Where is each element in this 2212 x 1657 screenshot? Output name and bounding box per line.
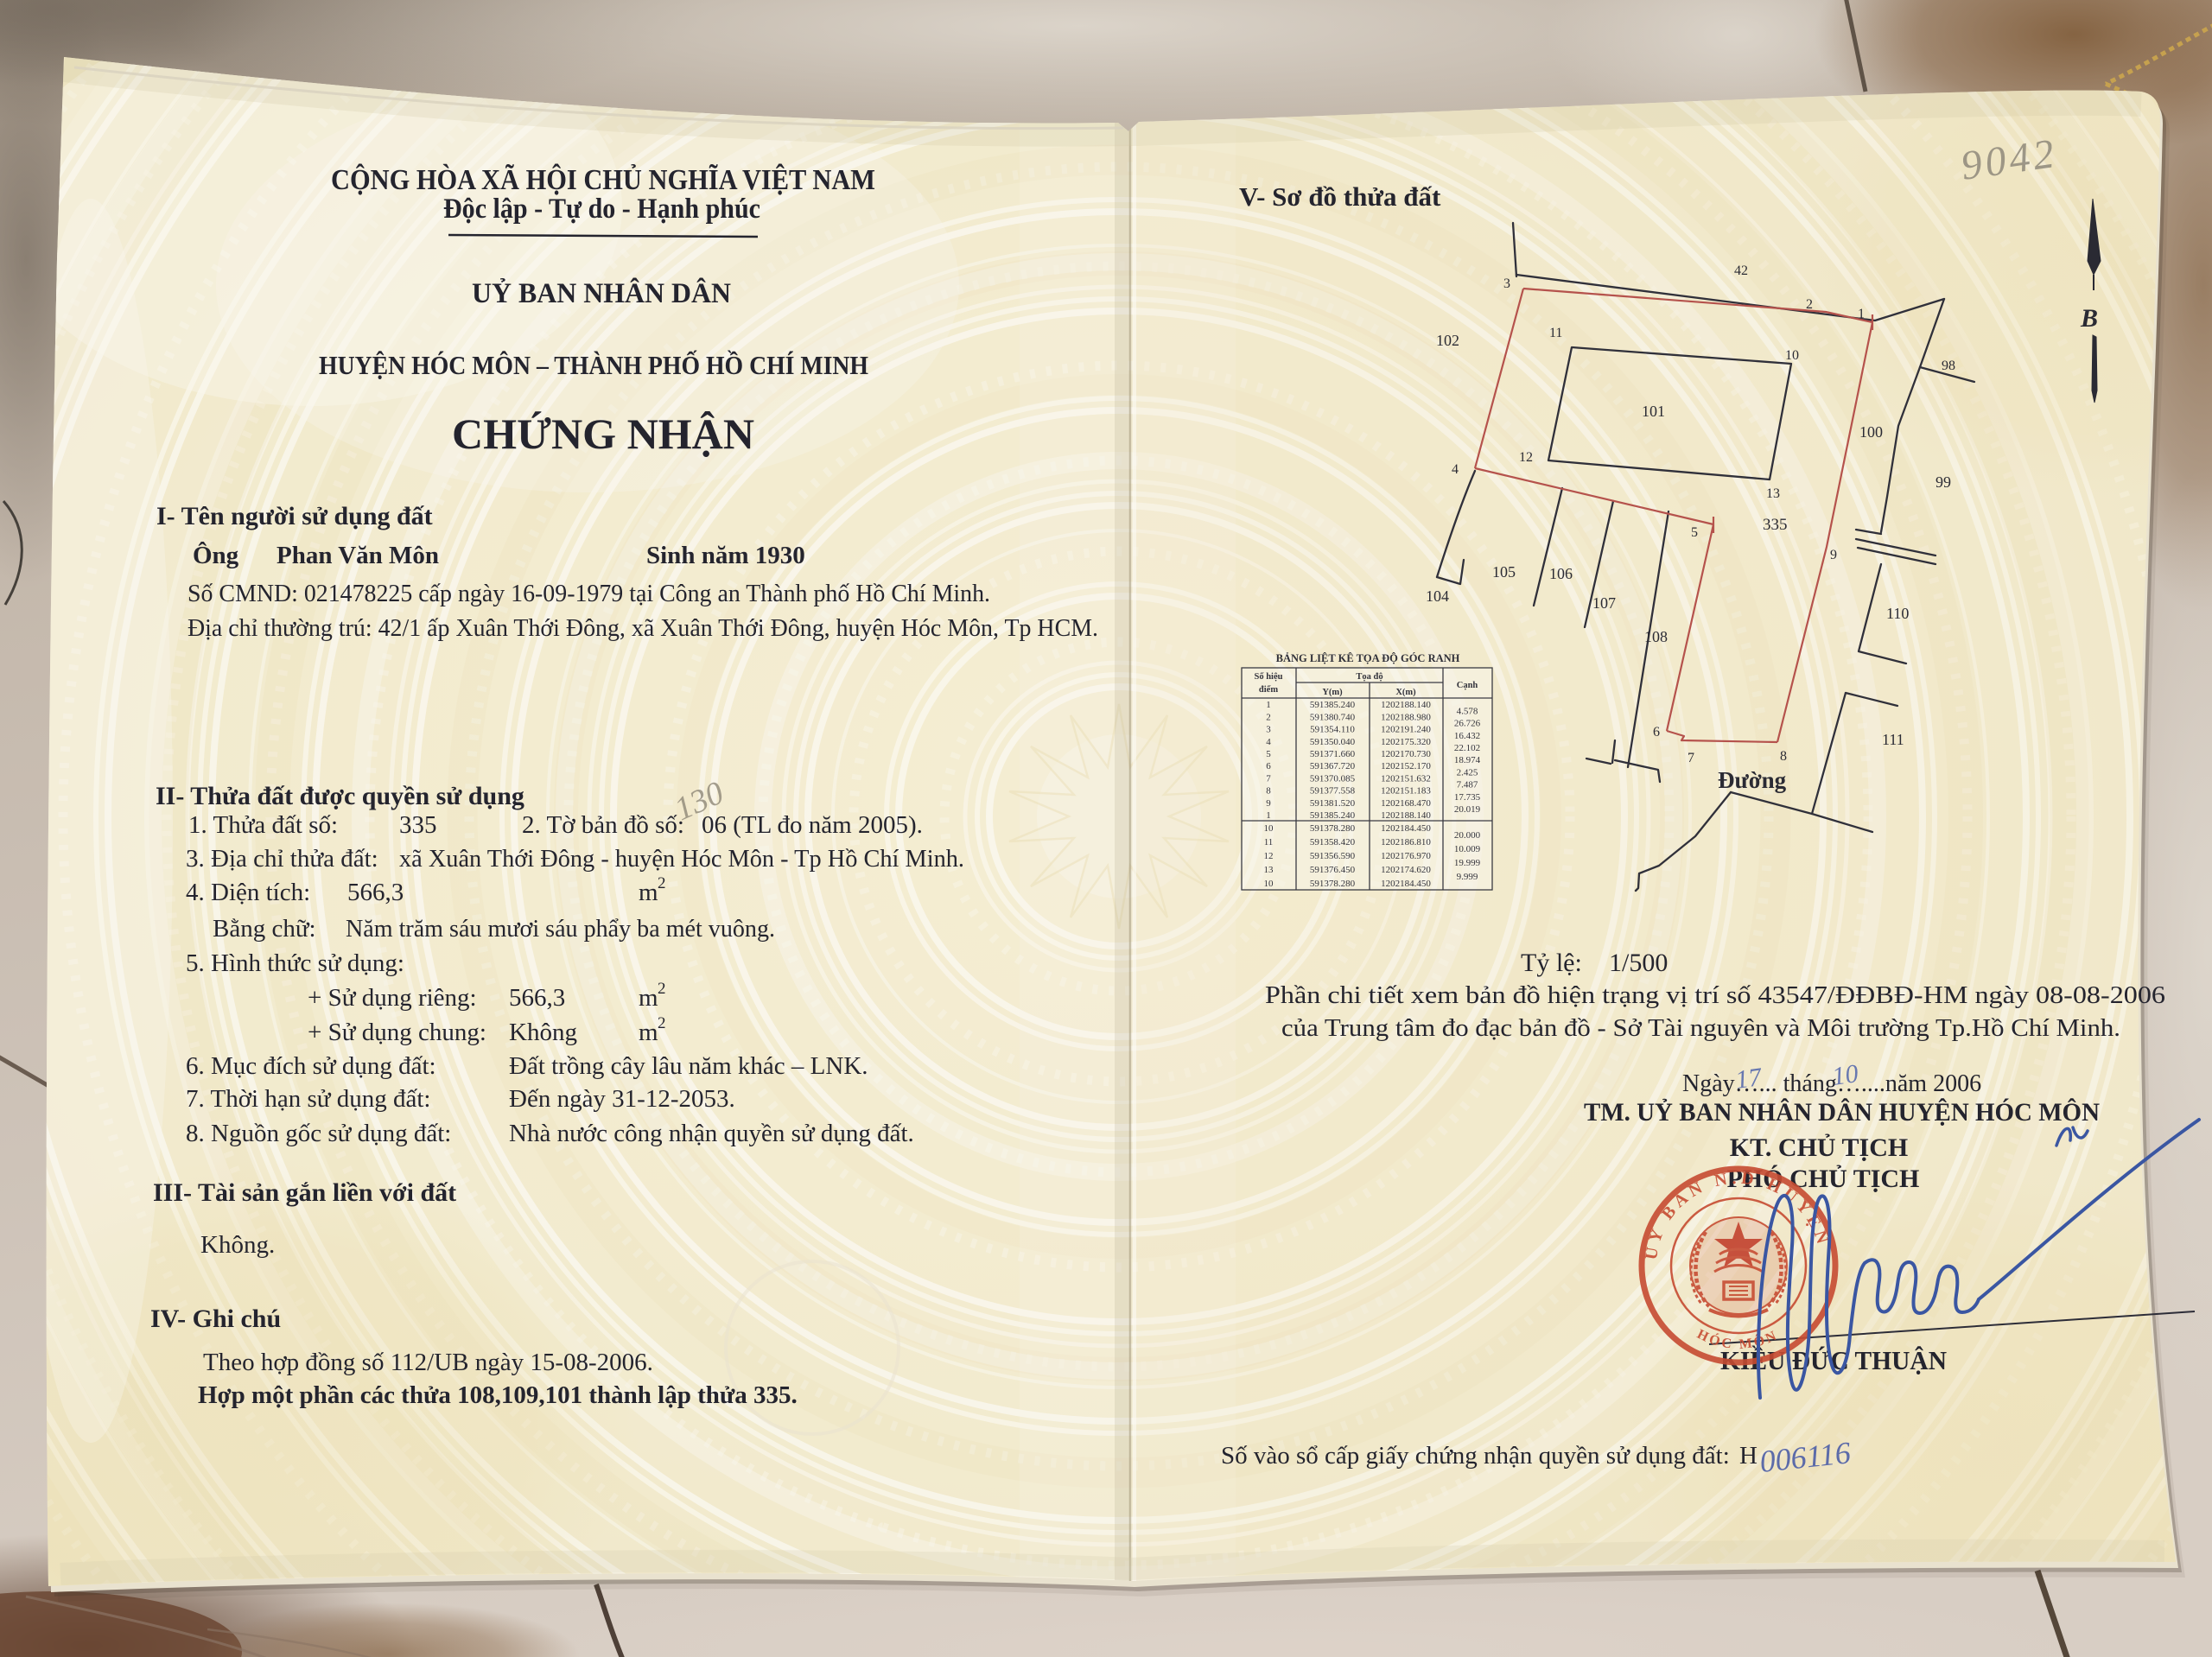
svg-text:11: 11: [1549, 326, 1562, 340]
svg-text:m: m: [639, 879, 658, 906]
svg-text:5. Hình thức sử dụng:: 5. Hình thức sử dụng:: [186, 949, 404, 977]
svg-text:7: 7: [1688, 751, 1694, 765]
svg-text:335: 335: [1763, 516, 1788, 534]
svg-text:I- Tên người sử dụng đất: I- Tên người sử dụng đất: [156, 502, 433, 530]
svg-text:Đường: Đường: [1718, 767, 1787, 793]
svg-text:1202188.140: 1202188.140: [1381, 810, 1431, 821]
svg-text:42: 42: [1734, 263, 1748, 278]
svg-text:10: 10: [1830, 1059, 1859, 1091]
svg-text:Địa chỉ thường trú: 42/1 ấp Xu: Địa chỉ thường trú: 42/1 ấp Xuân Thới Đô…: [188, 614, 1098, 642]
svg-text:591378.280: 591378.280: [1310, 823, 1356, 834]
svg-text:1202151.632: 1202151.632: [1381, 773, 1431, 784]
svg-text:8. Nguồn gốc sử dụng đất:: 8. Nguồn gốc sử dụng đất:: [186, 1120, 451, 1147]
svg-text:Độc lập - Tự do - Hạnh phúc: Độc lập - Tự do - Hạnh phúc: [443, 194, 760, 225]
svg-text:X(m): X(m): [1395, 688, 1416, 697]
svg-text:1202152.170: 1202152.170: [1381, 761, 1431, 771]
svg-text:9: 9: [1266, 798, 1271, 809]
svg-text:06 (TL đo năm 2005).: 06 (TL đo năm 2005).: [702, 811, 923, 839]
svg-text:CỘNG HÒA XÃ HỘI CHỦ NGHĨA VIỆT: CỘNG HÒA XÃ HỘI CHỦ NGHĨA VIỆT NAM: [331, 163, 875, 196]
svg-text:9: 9: [1830, 548, 1837, 562]
svg-text:Hợp một phần các thửa 108,109,: Hợp một phần các thửa 108,109,101 thành …: [198, 1381, 798, 1409]
svg-text:20.019: 20.019: [1454, 804, 1481, 815]
svg-text:7. Thời hạn sử dụng đất:: 7. Thời hạn sử dụng đất:: [186, 1085, 430, 1113]
svg-text:108: 108: [1644, 628, 1668, 645]
svg-text:Đất trồng cây lâu năm khác – L: Đất trồng cây lâu năm khác – LNK.: [509, 1052, 868, 1080]
svg-text:9.999: 9.999: [1457, 872, 1478, 882]
svg-text:1202188.140: 1202188.140: [1381, 700, 1431, 710]
svg-text:591385.240: 591385.240: [1310, 700, 1356, 710]
svg-text:III- Tài sản gắn liền với đất: III- Tài sản gắn liền với đất: [153, 1178, 456, 1207]
svg-text:Số vào sổ cấp giấy chứng nhận: Số vào sổ cấp giấy chứng nhận quyền sử d…: [1221, 1442, 1730, 1470]
svg-text:99: 99: [1935, 473, 1951, 491]
svg-text:102: 102: [1436, 332, 1459, 349]
svg-text:1202174.620: 1202174.620: [1381, 865, 1431, 875]
svg-text:566,3: 566,3: [509, 984, 565, 1012]
svg-text:6: 6: [1653, 725, 1660, 740]
svg-text:12: 12: [1519, 450, 1533, 465]
svg-text:Tỷ lệ:: Tỷ lệ:: [1521, 949, 1582, 977]
svg-text:B: B: [2080, 304, 2098, 333]
svg-text:UỶ BAN NHÂN DÂN: UỶ BAN NHÂN DÂN: [472, 276, 731, 309]
svg-text:591377.558: 591377.558: [1310, 786, 1356, 797]
svg-text:101: 101: [1642, 403, 1665, 420]
svg-text:10: 10: [1264, 879, 1274, 889]
svg-text:591350.040: 591350.040: [1310, 737, 1356, 747]
svg-text:106: 106: [1549, 565, 1573, 582]
svg-text:1: 1: [1266, 700, 1271, 710]
svg-text:5: 5: [1691, 525, 1698, 540]
svg-text:104: 104: [1426, 587, 1449, 605]
svg-text:12: 12: [1264, 851, 1274, 861]
svg-text:+ Sử dụng riêng:: + Sử dụng riêng:: [308, 984, 477, 1012]
svg-text:1202151.183: 1202151.183: [1381, 786, 1431, 797]
svg-text:1: 1: [1858, 307, 1865, 321]
svg-text:4: 4: [1266, 737, 1271, 747]
svg-text:BẢNG LIỆT KÊ TỌA ĐỘ GÓC RANH: BẢNG LIỆT KÊ TỌA ĐỘ GÓC RANH: [1276, 652, 1460, 664]
svg-text:II- Thửa đất được quyền sử dụn: II- Thửa đất được quyền sử dụng: [156, 782, 524, 810]
svg-text:2: 2: [658, 874, 666, 892]
svg-text:xã Xuân Thới Đông - huyện Hóc: xã Xuân Thới Đông - huyện Hóc Môn - Tp H…: [399, 845, 964, 873]
svg-text:10: 10: [1785, 348, 1799, 363]
svg-text:Ông: Ông: [193, 541, 239, 569]
svg-text:2: 2: [658, 1014, 666, 1032]
svg-text:591354.110: 591354.110: [1310, 725, 1355, 735]
svg-text:Y(m): Y(m): [1322, 688, 1343, 697]
svg-text:HUYỆN HÓC MÔN – THÀNH PHỐ HỒ C: HUYỆN HÓC MÔN – THÀNH PHỐ HỒ CHÍ MINH: [319, 349, 868, 380]
svg-text:110: 110: [1886, 605, 1909, 622]
svg-text:2.425: 2.425: [1457, 767, 1478, 778]
svg-text:1202188.980: 1202188.980: [1381, 712, 1431, 722]
svg-text:1202170.730: 1202170.730: [1381, 749, 1431, 759]
svg-text:4.578: 4.578: [1457, 706, 1478, 716]
svg-text:Không.: Không.: [200, 1231, 275, 1259]
svg-text:591378.280: 591378.280: [1310, 879, 1356, 889]
svg-text:3. Địa chỉ thửa đất:: 3. Địa chỉ thửa đất:: [186, 845, 378, 873]
svg-text:6. Mục đích sử dụng đất:: 6. Mục đích sử dụng đất:: [186, 1052, 436, 1080]
svg-text:591367.720: 591367.720: [1310, 761, 1356, 771]
svg-text:Tọa độ: Tọa độ: [1356, 672, 1382, 682]
svg-text:111: 111: [1882, 731, 1904, 748]
svg-text:2: 2: [1806, 297, 1813, 312]
svg-text:18.974: 18.974: [1454, 755, 1481, 765]
svg-text:V- Sơ đồ thửa đất: V- Sơ đồ thửa đất: [1239, 181, 1441, 212]
svg-text:591381.520: 591381.520: [1310, 798, 1356, 809]
svg-text:13: 13: [1766, 486, 1780, 501]
svg-text:591376.450: 591376.450: [1310, 865, 1356, 875]
svg-text:335: 335: [399, 811, 437, 839]
svg-text:Sinh năm 1930: Sinh năm 1930: [646, 542, 805, 569]
svg-text:98: 98: [1942, 359, 1955, 373]
svg-text:Cạnh: Cạnh: [1457, 681, 1478, 690]
svg-text:591385.240: 591385.240: [1310, 810, 1356, 821]
svg-text:1202191.240: 1202191.240: [1381, 725, 1431, 735]
svg-text:8: 8: [1266, 786, 1271, 797]
svg-text:H: H: [1739, 1442, 1758, 1470]
svg-text:3: 3: [1503, 276, 1510, 291]
svg-text:Theo hợp đồng số 112/UB ngày 1: Theo hợp đồng số 112/UB ngày 15-08-2006.: [203, 1349, 653, 1376]
svg-text:Năm trăm sáu mươi sáu phẩy ba: Năm trăm sáu mươi sáu phẩy ba mét vuông.: [346, 915, 775, 943]
svg-text:16.432: 16.432: [1454, 731, 1480, 741]
svg-text:1/500: 1/500: [1609, 949, 1668, 977]
svg-text:6: 6: [1266, 761, 1271, 771]
svg-text:17.735: 17.735: [1454, 792, 1481, 803]
svg-text:2: 2: [1266, 712, 1271, 722]
svg-text:10.009: 10.009: [1454, 844, 1481, 854]
svg-text:591380.740: 591380.740: [1310, 712, 1356, 722]
svg-text:Số hiệu: Số hiệu: [1255, 672, 1283, 682]
svg-text:Số CMND: 021478225 cấp ngày 16: Số CMND: 021478225 cấp ngày 16-09-1979 t…: [188, 580, 990, 607]
svg-text:107: 107: [1592, 594, 1616, 612]
svg-text:19.999: 19.999: [1454, 858, 1481, 868]
svg-text:Bằng chữ:: Bằng chữ:: [213, 915, 316, 943]
svg-text:5: 5: [1266, 749, 1271, 759]
svg-text:của Trung tâm đo đạc bản đồ -: của Trung tâm đo đạc bản đồ - Sở Tài ngu…: [1281, 1014, 2120, 1042]
svg-text:20.000: 20.000: [1454, 830, 1481, 841]
svg-text:591358.420: 591358.420: [1310, 837, 1356, 848]
svg-text:Phần chi tiết xem bản đồ hiện: Phần chi tiết xem bản đồ hiện trạng vị t…: [1265, 981, 2165, 1009]
svg-text:591356.590: 591356.590: [1310, 851, 1356, 861]
svg-text:+ Sử dụng chung:: + Sử dụng chung:: [308, 1019, 486, 1046]
svg-text:7.487: 7.487: [1457, 780, 1478, 790]
svg-text:10: 10: [1264, 823, 1274, 834]
svg-text:Không: Không: [509, 1019, 577, 1046]
svg-text:Đến ngày 31-12-2053.: Đến ngày 31-12-2053.: [509, 1085, 735, 1113]
svg-text:1202184.450: 1202184.450: [1381, 823, 1431, 834]
svg-text:566,3: 566,3: [347, 879, 404, 906]
svg-text:22.102: 22.102: [1454, 743, 1480, 753]
svg-text:Nhà nước công nhận quyền sử dụ: Nhà nước công nhận quyền sử dụng đất.: [509, 1120, 914, 1147]
svg-text:Phan Văn Môn: Phan Văn Môn: [276, 542, 439, 569]
svg-text:1. Thửa đất số:: 1. Thửa đất số:: [188, 811, 338, 839]
svg-text:1202175.320: 1202175.320: [1381, 737, 1431, 747]
svg-text:m: m: [639, 1019, 658, 1046]
svg-text:IV- Ghi chú: IV- Ghi chú: [150, 1305, 281, 1333]
svg-text:TM. UỶ BAN NHÂN DÂN HUYỆN HÓC: TM. UỶ BAN NHÂN DÂN HUYỆN HÓC MÔN: [1584, 1098, 2100, 1127]
svg-text:CHỨNG NHẬN: CHỨNG NHẬN: [452, 409, 754, 458]
svg-text:105: 105: [1492, 563, 1516, 581]
svg-text:4: 4: [1452, 462, 1459, 477]
svg-text:1202184.450: 1202184.450: [1381, 879, 1431, 889]
svg-text:4. Diện tích:: 4. Diện tích:: [186, 879, 310, 906]
svg-text:KT. CHỦ TỊCH: KT. CHỦ TỊCH: [1730, 1133, 1908, 1162]
svg-text:13: 13: [1264, 865, 1274, 875]
svg-text:1202186.810: 1202186.810: [1381, 837, 1431, 848]
svg-text:2. Tờ bản đồ số:: 2. Tờ bản đồ số:: [522, 811, 684, 839]
svg-text:7: 7: [1266, 773, 1271, 784]
svg-text:26.726: 26.726: [1454, 719, 1481, 729]
svg-text:8: 8: [1780, 749, 1787, 764]
svg-text:m: m: [639, 984, 658, 1012]
svg-text:11: 11: [1264, 837, 1274, 848]
svg-text:1202176.970: 1202176.970: [1381, 851, 1431, 861]
svg-text:591370.085: 591370.085: [1310, 773, 1356, 784]
svg-text:3: 3: [1266, 725, 1271, 735]
svg-text:1: 1: [1266, 810, 1271, 821]
svg-text:591371.660: 591371.660: [1310, 749, 1356, 759]
svg-text:điểm: điểm: [1259, 685, 1278, 695]
svg-text:100: 100: [1859, 423, 1883, 441]
svg-text:1202168.470: 1202168.470: [1381, 798, 1431, 809]
svg-text:2: 2: [658, 980, 666, 998]
